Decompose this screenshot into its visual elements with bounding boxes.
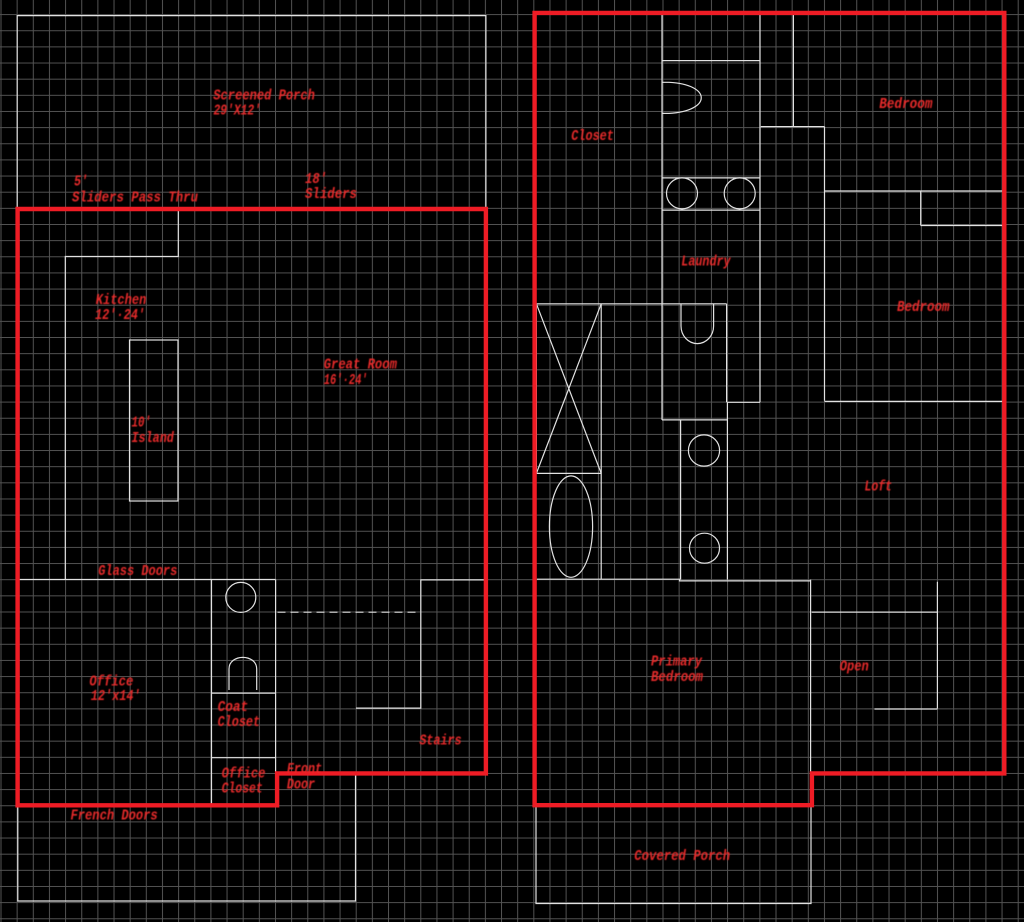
svg-text:Covered Porch: Covered Porch <box>634 847 730 865</box>
svg-text:Sliders: Sliders <box>305 185 357 203</box>
svg-text:12'·24': 12'·24' <box>95 306 145 324</box>
svg-text:Stairs: Stairs <box>419 731 461 749</box>
svg-text:12'x14': 12'x14' <box>91 687 141 705</box>
svg-text:29'X12': 29'X12' <box>214 101 262 119</box>
svg-text:Bedroom: Bedroom <box>651 668 703 686</box>
svg-text:16'·24': 16'·24' <box>324 371 368 389</box>
svg-text:Sliders Pass Thru: Sliders Pass Thru <box>72 188 198 206</box>
svg-text:Open: Open <box>840 657 869 675</box>
svg-text:Door: Door <box>287 775 315 793</box>
svg-text:Bedroom: Bedroom <box>897 298 950 316</box>
svg-text:Closet: Closet <box>222 779 263 797</box>
svg-text:Bedroom: Bedroom <box>879 95 932 113</box>
svg-text:Island: Island <box>132 429 175 447</box>
svg-text:Closet: Closet <box>571 127 614 145</box>
svg-text:Closet: Closet <box>218 713 261 731</box>
svg-text:French Doors: French Doors <box>71 806 158 824</box>
svg-text:Laundry: Laundry <box>681 253 731 271</box>
svg-text:Loft: Loft <box>865 477 893 495</box>
svg-text:Glass Doors: Glass Doors <box>98 562 177 580</box>
